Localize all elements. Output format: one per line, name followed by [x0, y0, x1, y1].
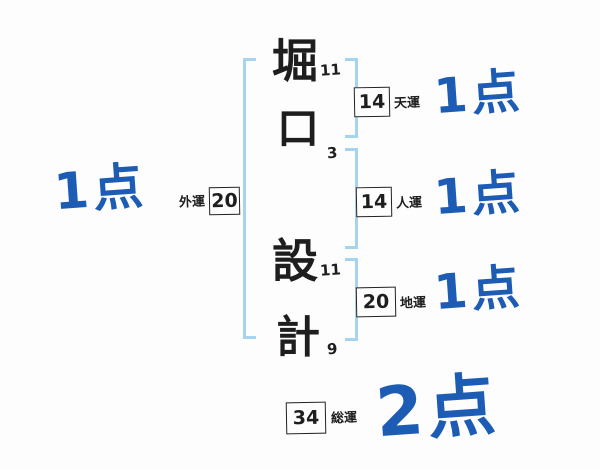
name-character-2: 口 — [277, 108, 319, 150]
stroke-count-4: 9 — [326, 342, 337, 358]
heaven-luck-score: 1点 — [432, 67, 525, 121]
name-character-1: 堀 — [272, 38, 318, 84]
outer-luck-value-box: 20 — [209, 187, 240, 216]
outer-luck-score: 1点 — [52, 161, 148, 217]
fortune-diagram: 堀 11 口 3 設 11 計 9 外運 20 14 天運 14 人運 20 地… — [0, 0, 600, 470]
name-character-4: 計 — [276, 316, 320, 360]
person-luck-label: 人運 — [396, 197, 422, 211]
heaven-luck-value: 14 — [359, 92, 386, 111]
total-luck-value: 34 — [293, 408, 320, 427]
person-luck-value: 14 — [361, 192, 388, 211]
outer-luck-value: 20 — [211, 191, 238, 210]
outer-luck-label: 外運 — [179, 196, 205, 210]
stroke-count-3: 11 — [320, 262, 342, 278]
total-luck-label: 総運 — [331, 412, 357, 426]
stroke-count-2: 3 — [326, 146, 337, 162]
outer-luck-bracket — [243, 58, 256, 339]
total-luck-value-box: 34 — [286, 402, 327, 435]
earth-luck-label: 地運 — [400, 297, 426, 311]
stroke-count-1: 11 — [320, 62, 342, 78]
earth-luck-value: 20 — [363, 292, 390, 311]
total-luck-score: 2点 — [374, 372, 502, 448]
earth-luck-score: 1点 — [432, 263, 525, 317]
person-luck-score: 1点 — [432, 168, 525, 222]
earth-luck-value-box: 20 — [356, 287, 397, 318]
heaven-luck-value-box: 14 — [354, 87, 391, 118]
heaven-luck-label: 天運 — [394, 97, 420, 111]
person-luck-value-box: 14 — [356, 187, 393, 218]
name-character-3: 設 — [272, 238, 318, 284]
